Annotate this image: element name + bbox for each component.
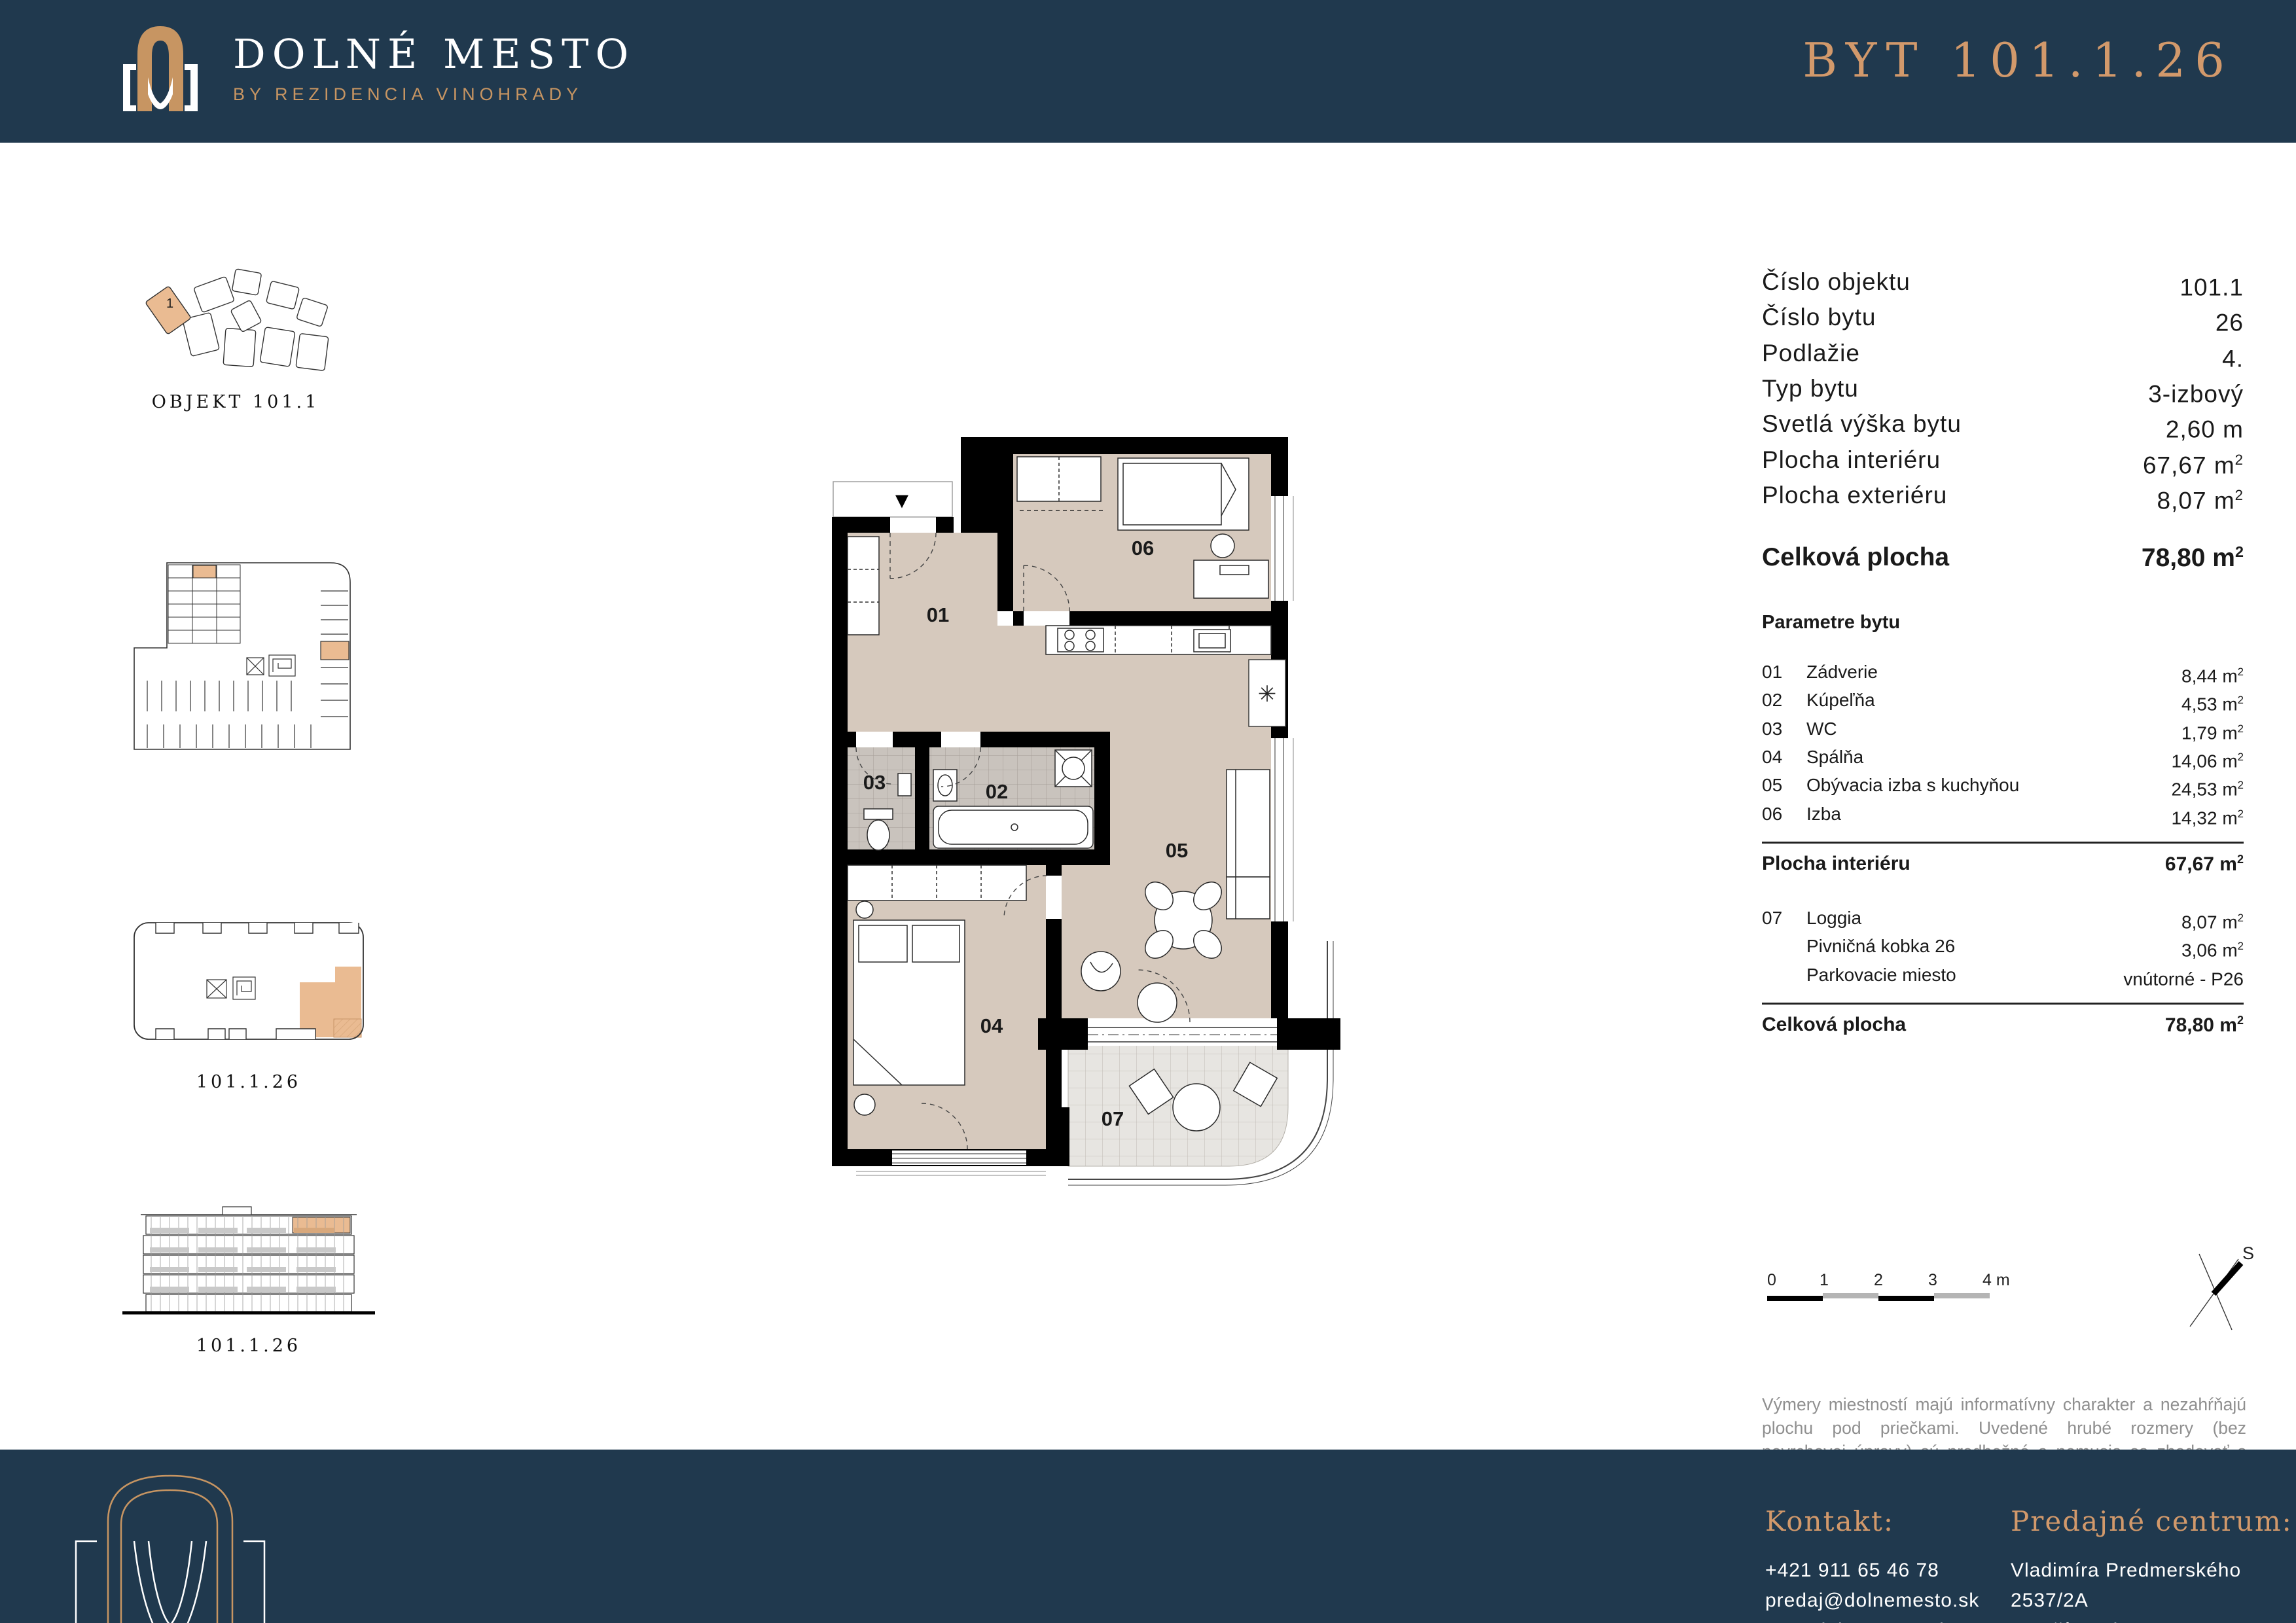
footer-sales-center: Predajné centrum: Vladimíra Predmerského… bbox=[2011, 1505, 2296, 1623]
north-compass-icon: S bbox=[2185, 1245, 2257, 1336]
vzt-icon: ✳ bbox=[1258, 682, 1277, 707]
entry-arrow-icon: ▼ bbox=[891, 488, 913, 513]
header-bar: DOLNÉ MESTO BY REZIDENCIA VINOHRADY BYT … bbox=[0, 0, 2296, 143]
contact-heading: Kontakt: bbox=[1765, 1505, 1979, 1537]
sales-center-address1: Vladimíra Predmerského 2537/2A bbox=[2011, 1556, 2296, 1616]
room-label-06: 06 bbox=[1132, 537, 1154, 560]
param-row: 05Obývacia izba s kuchyňou24,53 m2 bbox=[1762, 773, 2244, 801]
floorplate-loggia-hatch bbox=[334, 1019, 361, 1037]
info-row: Svetlá výška bytu2,60 m bbox=[1762, 409, 2244, 444]
param-row: 06Izba14,32 m2 bbox=[1762, 802, 2244, 830]
room-label-04: 04 bbox=[980, 1014, 1003, 1037]
site-plan-caption: OBJEKT 101.1 bbox=[134, 392, 337, 412]
total-area-row: Celková plocha 78,80 m2 bbox=[1762, 543, 2244, 573]
param-row: 03WC1,79 m2 bbox=[1762, 717, 2244, 745]
param-row: 01Zádverie8,44 m2 bbox=[1762, 660, 2244, 688]
param-row: Parkovacie miestovnútorné - P26 bbox=[1762, 963, 2244, 991]
garage-cellar-highlight bbox=[193, 565, 216, 578]
contact-email[interactable]: predaj@dolnemesto.sk bbox=[1765, 1586, 1979, 1616]
elevation-caption: 101.1.26 bbox=[121, 1336, 376, 1356]
apartment-sheet: DOLNÉ MESTO BY REZIDENCIA VINOHRADY BYT … bbox=[0, 0, 2296, 1623]
brand-logo: DOLNÉ MESTO BY REZIDENCIA VINOHRADY bbox=[111, 18, 635, 116]
apartment-info: Číslo objektu101.1 Číslo bytu26 Podlažie… bbox=[1762, 267, 2244, 573]
brand-name: DOLNÉ MESTO bbox=[233, 30, 635, 78]
floor-plan-drawing: ▼ bbox=[830, 424, 1340, 1216]
room-label-03: 03 bbox=[863, 771, 886, 794]
garage-plan-drawing bbox=[128, 560, 370, 756]
scale-bar: 0 1 2 3 4 m bbox=[1767, 1271, 2042, 1306]
elevation-drawing bbox=[121, 1198, 376, 1322]
sales-center-address2: Trenčín - Zlatovce, 911 05 bbox=[2011, 1616, 2296, 1623]
room-label-02: 02 bbox=[986, 780, 1008, 803]
room-label-05: 05 bbox=[1166, 839, 1188, 862]
divider bbox=[1762, 842, 2244, 844]
info-row: Číslo objektu101.1 bbox=[1762, 267, 2244, 302]
info-row: Plocha exteriéru8,07 m2 bbox=[1762, 480, 2244, 516]
compass-north-label: S bbox=[2242, 1245, 2254, 1263]
param-row: 02Kúpeľňa4,53 m2 bbox=[1762, 688, 2244, 716]
info-row: Plocha interiéru67,67 m2 bbox=[1762, 445, 2244, 480]
info-row: Typ bytu3-izbový bbox=[1762, 374, 2244, 409]
footer-monogram-icon bbox=[46, 1450, 301, 1623]
garage-plan bbox=[128, 560, 370, 759]
parameters-title: Parametre bytu bbox=[1762, 612, 2244, 633]
interior-area-row: Plocha interiéru67,67 m2 bbox=[1762, 853, 2244, 876]
sales-center-heading: Predajné centrum: bbox=[2011, 1505, 2296, 1537]
site-highlight-label: 1 bbox=[166, 296, 173, 311]
brand-subtitle: BY REZIDENCIA VINOHRADY bbox=[233, 84, 635, 105]
footer-contact: Kontakt: +421 911 65 46 78 predaj@dolnem… bbox=[1765, 1505, 1979, 1623]
floorplate-plan: 101.1.26 bbox=[131, 919, 367, 1092]
total-area-row-bottom: Celková plocha78,80 m2 bbox=[1762, 1014, 2244, 1037]
room-label-01: 01 bbox=[927, 603, 949, 626]
info-row: Číslo bytu26 bbox=[1762, 302, 2244, 338]
site-plan-drawing: 1 bbox=[134, 267, 337, 372]
floorplate-drawing bbox=[131, 919, 367, 1057]
param-row: 07Loggia8,07 m2 bbox=[1762, 906, 2244, 934]
brand-monogram-icon bbox=[111, 18, 209, 116]
param-row: Pivničná kobka 263,06 m2 bbox=[1762, 934, 2244, 962]
apartment-parameters: Parametre bytu 01Zádverie8,44 m2 02Kúpeľ… bbox=[1762, 612, 2244, 1037]
scale-bar-segments bbox=[1767, 1291, 2003, 1302]
contact-phone[interactable]: +421 911 65 46 78 bbox=[1765, 1556, 1979, 1586]
divider bbox=[1762, 1003, 2244, 1005]
floorplate-caption: 101.1.26 bbox=[131, 1072, 367, 1092]
garage-parking-highlight bbox=[321, 641, 349, 660]
elevation-view: 101.1.26 bbox=[121, 1198, 376, 1356]
page-title: BYT 101.1.26 bbox=[1803, 33, 2234, 88]
info-row: Podlažie4. bbox=[1762, 338, 2244, 374]
room-label-07: 07 bbox=[1102, 1107, 1124, 1130]
floor-plan: ▼ bbox=[830, 424, 1340, 1219]
contact-website[interactable]: www.dolnemesto.sk bbox=[1765, 1616, 1979, 1623]
param-row: 04Spálňa14,06 m2 bbox=[1762, 745, 2244, 773]
site-plan: 1 OBJEKT 101.1 bbox=[134, 267, 337, 412]
